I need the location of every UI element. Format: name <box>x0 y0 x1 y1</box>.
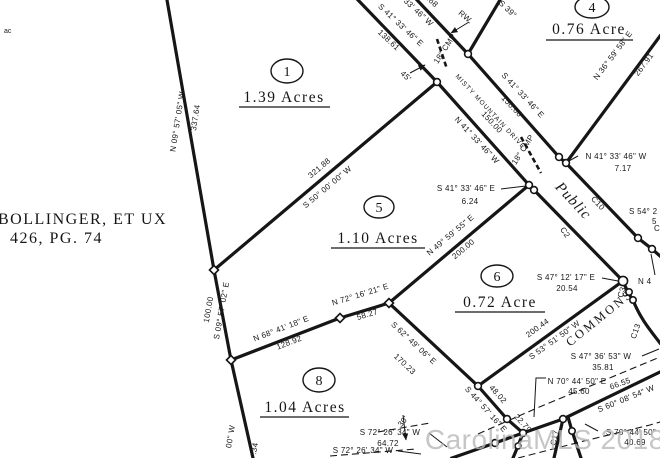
parcel-acreage: 1.04 Acres <box>264 399 345 416</box>
plat-map-canvas: 1 1.39 Acres 4 0.76 Acre 5 1.10 Acres 6 … <box>0 0 660 458</box>
distance-label: 337.64 <box>189 104 202 132</box>
bearing-fragment: S 39° <box>497 0 519 20</box>
distance-label: 58.27 <box>356 307 379 322</box>
bearing-label: N 70° 44' 50" E <box>548 377 607 386</box>
corner-node <box>649 246 656 253</box>
corner-node <box>531 187 538 194</box>
rw-label: RW. <box>457 9 475 26</box>
bearing-fragment: 00" W <box>224 424 237 448</box>
distance-label: 7.17 <box>615 164 632 173</box>
bearing-fragment: S 54° 2 <box>629 207 658 216</box>
owner-name: BOLLINGER, ET UX <box>0 211 167 228</box>
parcel-number: 5 <box>376 201 383 216</box>
distance-label: 170.23 <box>392 352 418 377</box>
corner-node <box>556 154 563 161</box>
parcel-acreage: 1.10 Acres <box>337 230 418 247</box>
corner-node <box>434 79 441 86</box>
road-width-label: 45' <box>398 69 413 83</box>
parcel-acreage: 0.76 Acre <box>552 21 626 38</box>
distance-fragment: .34 <box>249 442 260 456</box>
parcel-number: 8 <box>316 374 323 389</box>
parcel-acreage: 1.39 Acres <box>243 89 324 106</box>
leader-6-24 <box>501 186 526 189</box>
distance-label: 100.00 <box>202 296 215 324</box>
bearing-label: S 41° 33' 46" E <box>437 184 495 193</box>
distance-label: 20.54 <box>556 284 578 293</box>
leaders <box>398 22 659 454</box>
corner-node <box>504 416 511 423</box>
lot6-west-line <box>389 303 478 386</box>
corner-node <box>560 416 567 423</box>
deed-reference: 426, PG. 74 <box>10 230 103 247</box>
bearing-label: N 72° 16' 21" E <box>331 282 390 308</box>
leader-20-54 <box>602 278 618 281</box>
corner-fragment-text: ac <box>4 28 12 35</box>
bearing-label: S 47° 36' 53" W <box>571 352 632 361</box>
leader-35-81 <box>642 349 659 356</box>
setback-label: 30' <box>396 414 410 429</box>
west-boundary-line <box>167 0 253 458</box>
bearing-label: N 09° 57' 05" W <box>168 91 186 153</box>
bearing-callouts: N 09° 57' 05" W 337.64 S 09° 57' 02" E 1… <box>168 2 656 455</box>
corner-node <box>336 314 345 323</box>
parcel-number: 1 <box>284 65 291 80</box>
corner-node <box>227 356 236 365</box>
distance-label: 321.88 <box>306 156 332 180</box>
bearing-fragment: N 4 <box>638 277 652 286</box>
corner-node <box>635 235 642 242</box>
lot4-west-line <box>468 0 500 54</box>
bearing-label: S 72° 26' 34" W <box>333 446 394 455</box>
distance-label: 35.81 <box>592 363 614 372</box>
bearing-label: S 09° 57' 02" E <box>212 281 231 340</box>
distance-label: 45.60 <box>568 387 590 396</box>
parcel-number: 4 <box>589 1 596 16</box>
bearing-label: S 72° 26' 34" W <box>360 428 421 437</box>
watermark-text: CarolinaMLS 2018, <box>425 424 660 455</box>
leader-72-26-34-b <box>398 451 421 454</box>
distance-label: 66.55 <box>608 376 632 392</box>
owner-reference: ac BOLLINGER, ET UX 426, PG. 74 <box>0 28 167 247</box>
bearing-label: N 41° 33' 46" W <box>586 152 647 161</box>
parcel-number: 6 <box>494 270 501 285</box>
leader-n4-bracket <box>651 254 655 275</box>
culvert-upper-label: 18" CMP <box>432 32 458 65</box>
distance-label: 6.24 <box>462 197 479 206</box>
leader-45-60-bracket <box>534 378 546 417</box>
curve-label-c13: C13 <box>629 322 643 340</box>
parcel-acreage: 0.72 Acre <box>463 294 537 311</box>
rw-arrow <box>451 22 469 33</box>
corner-node <box>465 51 472 58</box>
corner-node <box>563 160 570 167</box>
corner-node <box>618 276 627 285</box>
plat-map: 1 1.39 Acres 4 0.76 Acre 5 1.10 Acres 6 … <box>0 0 660 458</box>
bearing-label: S 47° 12' 17" E <box>537 273 595 282</box>
bearing-fragment: C <box>654 224 660 233</box>
corner-node <box>475 383 482 390</box>
